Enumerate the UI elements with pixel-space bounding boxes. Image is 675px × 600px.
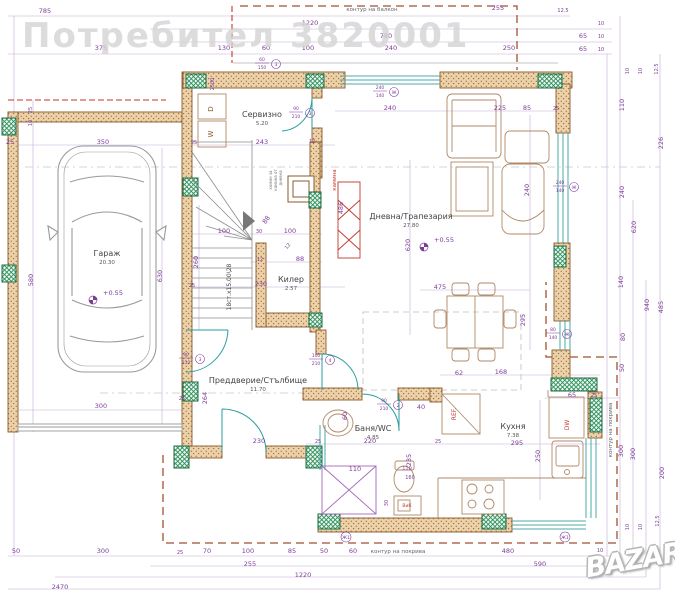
tag-height: 210 — [380, 406, 389, 412]
dimension-label: 260 — [192, 256, 200, 268]
dimension-label: 240 — [618, 186, 626, 198]
dimension-label: 100 — [242, 547, 254, 555]
dimension-label: 62 — [455, 369, 463, 377]
floor-plan-drawing: 78525512.5122078037513060100240250651065… — [0, 0, 675, 600]
dimension-label: 264 — [201, 392, 209, 404]
dimension-label: 25 — [6, 138, 14, 146]
dimension-label: 10 — [28, 120, 34, 126]
annotation-label: камина — [332, 169, 338, 190]
dimension-label: 590 — [534, 560, 546, 568]
dimension-label: 110 — [402, 466, 412, 472]
tag-number: 3 — [199, 357, 202, 363]
dimension-label: 475 — [434, 283, 446, 291]
dimension-label: 50 — [12, 547, 20, 555]
shower — [322, 466, 376, 514]
dimension-label: 30 — [256, 229, 262, 235]
garage-gate — [18, 424, 182, 431]
dimension-label: 12 — [257, 257, 263, 263]
dimension-label: 243 — [256, 138, 268, 146]
dimension-label: 295 — [519, 314, 527, 326]
dimension-label: 65 — [579, 32, 587, 40]
chair — [434, 310, 446, 328]
tag-height: 210 — [182, 360, 191, 366]
annotation-label: D — [207, 106, 215, 111]
room-name: Килер — [278, 275, 304, 284]
annotation-label: W — [207, 130, 215, 137]
dimension-label: 250 — [534, 450, 542, 462]
stair-direction-arrow — [243, 211, 255, 231]
dimension-label: 140 — [617, 276, 625, 288]
dimension-label: 485 — [657, 301, 665, 313]
dimension-label: 10 — [625, 68, 631, 74]
dimension-label: 10 — [638, 68, 644, 74]
dimension-label: 300 — [617, 445, 625, 457]
dimension-label: 25 — [177, 550, 183, 556]
tag-width: 100 — [312, 353, 321, 359]
tag-width: 90 — [293, 106, 299, 112]
annotation-label: контур на покрива — [371, 549, 426, 555]
chair — [504, 310, 516, 328]
dimension-label: 100 — [302, 44, 314, 52]
dimension-label: 250 — [503, 44, 515, 52]
dimension-label: 80 — [619, 333, 627, 341]
dimension-label: 240 — [523, 184, 531, 196]
dimension-label: 225 — [494, 104, 506, 112]
room-area: 27.80 — [403, 223, 419, 229]
dimension-label: 486 — [337, 202, 345, 214]
dishwasher — [549, 397, 584, 438]
tag-number: Ж — [572, 185, 577, 191]
dimension-label: 300 — [97, 547, 109, 555]
chair — [478, 283, 495, 295]
annotation-label: контур на балкон — [346, 7, 398, 13]
dimension-label: 25 — [435, 439, 441, 445]
tag-width: 240 — [376, 85, 385, 91]
dimension-label: 580 — [27, 274, 35, 286]
dining-zone-outline — [363, 312, 521, 390]
room-name: Кухня — [500, 422, 525, 431]
dimension-label: 300 — [629, 448, 637, 460]
tag-height: 140 — [556, 188, 565, 194]
dimension-label: 10 — [597, 548, 603, 554]
dimension-label: 65 — [568, 391, 576, 399]
tag-height: 140 — [549, 335, 558, 341]
dimension-label: 60 — [349, 547, 357, 555]
dimension-label: 620 — [404, 239, 412, 251]
dimension-label: 10 — [625, 524, 631, 530]
dimension-label: 60 — [262, 44, 270, 52]
chair — [478, 349, 495, 361]
chair — [452, 283, 469, 295]
annotation-label: ВиК — [402, 503, 412, 509]
room-name: Преддверие/Стълбище — [209, 376, 307, 385]
dimension-label: 40 — [417, 403, 425, 411]
dimension-label: 2500 — [210, 78, 216, 91]
dimension-label: 130 — [218, 44, 230, 52]
tag-number: Ж1 — [561, 535, 569, 541]
room-area: 11.70 — [250, 387, 266, 393]
dimension-label: 235 — [405, 454, 413, 466]
cabinet — [451, 162, 493, 216]
room-area: 20.30 — [99, 260, 115, 266]
dimension-label: 230 — [255, 280, 267, 288]
dimension-label: 12.5 — [655, 515, 661, 526]
dimension-label: 12 — [309, 139, 315, 145]
floorplan-canvas: 78525512.5122078037513060100240250651065… — [0, 0, 675, 600]
room-name: Сервизно — [242, 110, 282, 119]
tag-width: 90 — [183, 352, 189, 358]
tag-height: 210 — [312, 361, 321, 367]
room-name: Дневна/Трапезария — [369, 212, 452, 221]
dimension-label: 25 — [189, 283, 195, 289]
dimension-label: 65 — [579, 45, 587, 53]
dimension-label: 25 — [553, 106, 559, 112]
annotation-label: дневна — [278, 170, 283, 186]
level-label: +0.55 — [103, 289, 123, 297]
tag-number: 3 — [275, 62, 278, 68]
counter-edge — [438, 390, 586, 518]
room-area: 5.20 — [256, 121, 269, 127]
dimension-label: 375 — [95, 44, 107, 52]
dimension-label: 230 — [253, 437, 265, 445]
annotation-label: REF. — [451, 408, 458, 420]
dimension-label: 25 — [28, 107, 34, 113]
tag-height: 140 — [376, 93, 385, 99]
dimension-label: 85 — [523, 104, 531, 112]
tag-width: 240 — [556, 180, 565, 186]
dimension-label: 160 — [405, 475, 415, 481]
dimension-label: 25 — [591, 393, 597, 399]
chair — [452, 349, 469, 361]
dimension-label: 168 — [495, 368, 507, 376]
dimension-label: 300 — [95, 402, 107, 410]
dimension-label: 255 — [244, 560, 256, 568]
dimension-label: 25 — [179, 396, 185, 402]
level-markers: +0.55+0.55 — [89, 236, 454, 304]
dimension-label: 50 — [320, 547, 328, 555]
annotation-label: 18ст.х15.00\28 — [226, 263, 233, 310]
tag-width: 80 — [550, 327, 556, 333]
room-area: 7.38 — [507, 433, 520, 439]
annotation-labels: контур на балконконтур на покриваконтур … — [207, 7, 614, 555]
level-label: +0.55 — [434, 236, 454, 244]
car — [48, 146, 166, 372]
dimension-label: 255 — [492, 4, 504, 12]
dimension-label: 940 — [643, 299, 651, 311]
dimension-label: 100 — [284, 227, 296, 235]
tag-number: 2 — [397, 403, 400, 409]
dimension-label: 780 — [380, 32, 392, 40]
tag-width: 60 — [259, 57, 265, 63]
tag-number: 4 — [329, 358, 332, 364]
tag-height: 150 — [258, 65, 267, 71]
tag-number: Ж1 — [342, 535, 350, 541]
tag-number: Ж — [392, 90, 397, 96]
annotation-label: контур на покрива — [608, 403, 614, 458]
dimension-label: 88 — [296, 255, 304, 263]
tag-height: 210 — [292, 114, 301, 120]
dimension-label: 1220 — [302, 19, 319, 27]
dimension-label: 25 — [191, 140, 197, 146]
dimension-label: 12.5 — [654, 63, 660, 74]
room-area: 4.85 — [367, 435, 380, 441]
dimension-label: 785 — [39, 7, 51, 15]
dimension-label: 12.5 — [557, 8, 568, 14]
dimension-label: 50 — [618, 364, 626, 372]
tag-number: Ж — [565, 332, 570, 338]
annotation-label: DW — [564, 420, 571, 431]
room-area: 2.57 — [285, 286, 298, 292]
dimension-label: 10 — [598, 47, 604, 53]
dimension-label: 12 — [284, 242, 293, 251]
dimension-label: 295 — [511, 439, 523, 447]
dimension-label: 480 — [502, 547, 514, 555]
dimension-label: 88 — [261, 214, 272, 225]
dimension-label: 226 — [657, 137, 665, 149]
dimension-label: 2470 — [52, 583, 69, 591]
dimension-label: 10 — [598, 34, 604, 40]
dimension-label: 10 — [598, 21, 604, 27]
dimension-label: 620 — [630, 221, 638, 233]
dimension-label: 240 — [384, 104, 396, 112]
fireplace — [338, 182, 360, 258]
dimension-label: 240 — [385, 44, 397, 52]
dimension-label: 110 — [349, 465, 361, 473]
dimension-label: 10 — [638, 524, 644, 530]
dimension-label: 25 — [315, 439, 321, 445]
door-window-tags: 902103601503240140Ж240140Ж80140Ж90210310… — [179, 57, 579, 542]
staircase — [192, 140, 255, 330]
dimension-label: 1220 — [295, 571, 312, 579]
side-table — [502, 164, 544, 234]
dimension-label: 110 — [618, 99, 626, 111]
tag-number: 3 — [309, 111, 312, 117]
dimension-label: 100 — [218, 227, 230, 235]
dimension-label: 350 — [97, 138, 109, 146]
armchair — [505, 131, 549, 163]
dimension-label: 85 — [288, 547, 296, 555]
tag-width: 90 — [381, 398, 387, 404]
dimension-label: 60 — [341, 412, 349, 420]
dimension-label: 200 — [658, 467, 666, 479]
dimension-label: 630 — [156, 270, 164, 282]
dimension-label: 30 — [384, 500, 390, 506]
dimension-label: 70 — [203, 547, 211, 555]
room-name: Баня/WC — [355, 424, 392, 433]
room-name: Гараж — [94, 249, 121, 258]
